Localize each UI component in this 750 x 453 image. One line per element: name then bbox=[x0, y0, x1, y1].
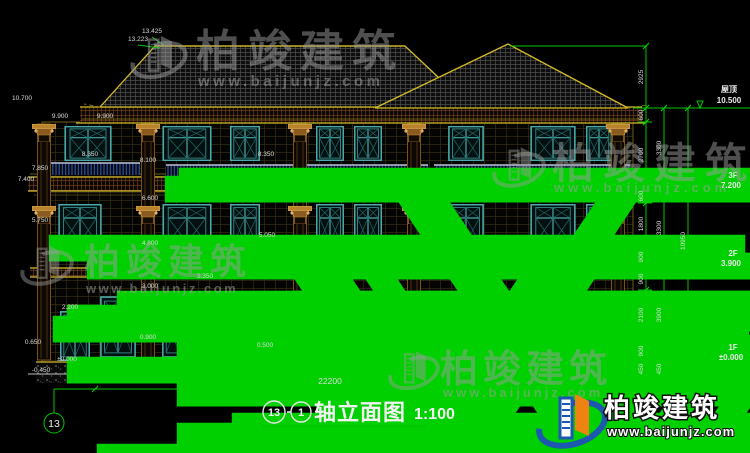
elevation-marker: ±0.000 bbox=[57, 356, 77, 363]
dim-text: 10950 bbox=[680, 232, 687, 250]
elevation-marker: 0.500 bbox=[257, 342, 274, 349]
elevation-drawing-canvas: 13.425 13.223 10.700 9.900 9.900 8.350 8… bbox=[0, 0, 750, 453]
dim-text: 900 bbox=[638, 273, 645, 284]
elevation-marker: 8.350 bbox=[258, 151, 275, 158]
watermark-url: www.baijunjz.com bbox=[197, 73, 383, 90]
elevation-marker: 13.425 bbox=[142, 28, 162, 35]
level-value: ±0.000 bbox=[719, 353, 744, 362]
dim-text: 450 bbox=[638, 363, 645, 374]
elevation-marker: 8.100 bbox=[140, 157, 157, 164]
title-name: 轴立面图 bbox=[314, 400, 406, 425]
watermark-brand: 柏竣建筑 bbox=[84, 241, 252, 282]
elevation-marker: 6.600 bbox=[142, 195, 159, 202]
level-name: 屋顶 bbox=[721, 84, 737, 94]
dim-text: 2925 bbox=[638, 69, 645, 84]
elevation-marker: 5.750 bbox=[32, 217, 49, 224]
logo-url-text: www.baijunjz.com bbox=[606, 424, 735, 439]
watermark-url: www.baijunjz.com bbox=[85, 281, 238, 296]
elevation-marker: 7.400 bbox=[18, 176, 35, 183]
elevation-marker: 2.200 bbox=[62, 304, 79, 311]
elevation-marker: 8.350 bbox=[82, 151, 99, 158]
elevation-marker: 10.700 bbox=[12, 95, 32, 102]
elevation-marker: 9.900 bbox=[97, 113, 114, 120]
axis-end-label: 1 bbox=[298, 407, 304, 419]
main-eave-cornice bbox=[76, 107, 646, 123]
dim-text: 1800 bbox=[638, 216, 645, 231]
logo-tower-orange bbox=[575, 394, 589, 436]
dim-text: 3300 bbox=[656, 220, 663, 235]
logo-brand-text: 柏竣建筑 bbox=[604, 393, 720, 423]
elevation-marker: 13.223 bbox=[128, 36, 148, 43]
elevation-marker: 0.900 bbox=[140, 334, 157, 341]
dim-text: 2100 bbox=[638, 307, 645, 322]
level-value: 10.500 bbox=[717, 96, 742, 105]
elevation-marker: -0.450 bbox=[32, 367, 51, 374]
title-scale: 1:100 bbox=[414, 406, 455, 423]
title-underline bbox=[262, 425, 426, 428]
dim-text: 900 bbox=[638, 345, 645, 356]
overall-width-dim: 22200 bbox=[318, 376, 342, 386]
dim-text: 3900 bbox=[656, 307, 663, 322]
level-value: 3.900 bbox=[721, 259, 742, 268]
dim-text: 900 bbox=[638, 251, 645, 262]
axis-start-label: 13 bbox=[268, 407, 280, 419]
watermark-url: www.baijunjz.com bbox=[553, 180, 730, 195]
level-name: 1F bbox=[728, 343, 737, 352]
grid-bubble-label: 13 bbox=[48, 418, 60, 430]
dim-text: 600 bbox=[638, 109, 645, 120]
watermark-brand: 柏竣建筑 bbox=[196, 27, 404, 76]
elevation-marker: 5.050 bbox=[259, 232, 276, 239]
dim-text: 450 bbox=[656, 363, 663, 374]
level-name: 2F bbox=[728, 249, 737, 258]
elevation-marker: 7.850 bbox=[32, 165, 49, 172]
elevation-marker: 9.900 bbox=[52, 113, 69, 120]
elevation-marker: 0.650 bbox=[25, 339, 42, 346]
